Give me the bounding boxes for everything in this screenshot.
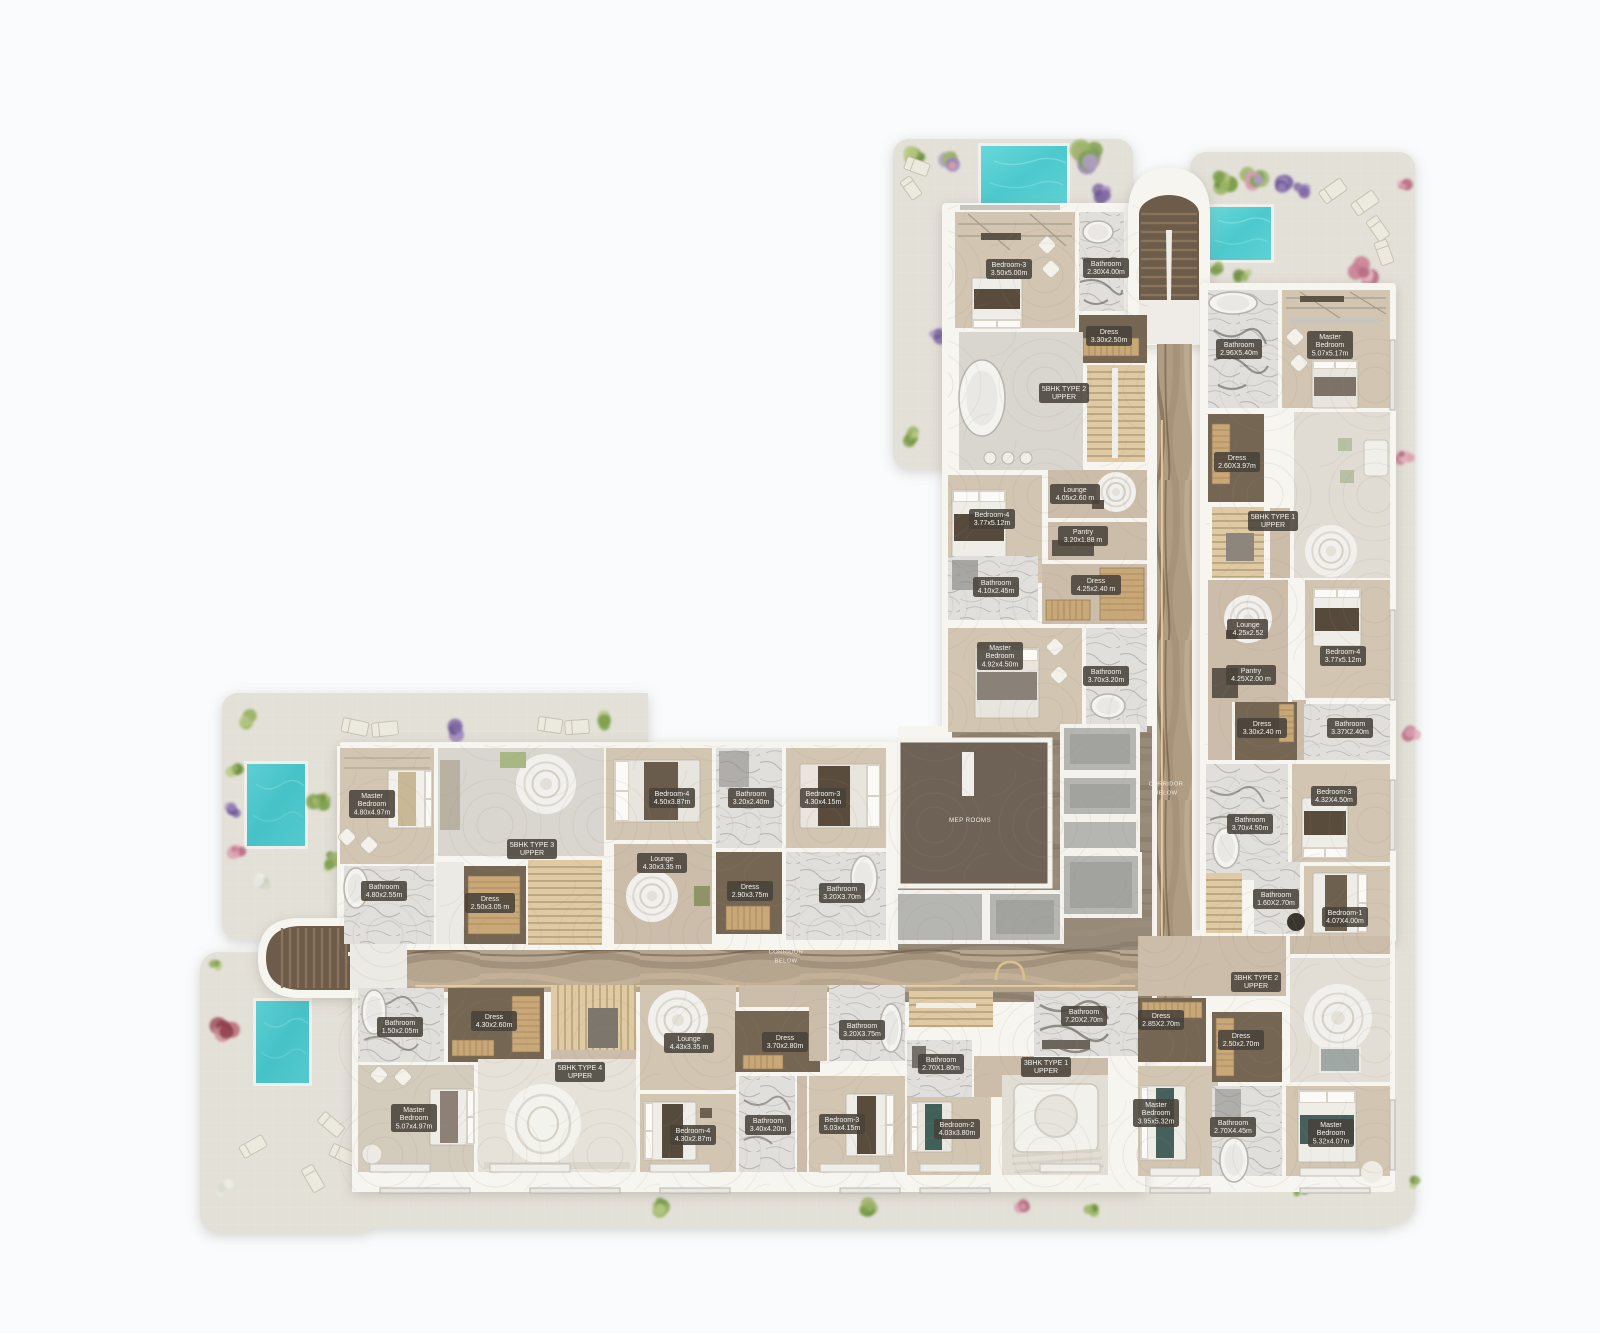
svg-text:Dress: Dress: [1152, 1013, 1171, 1020]
svg-text:Bedroom-2: Bedroom-2: [940, 1122, 975, 1129]
svg-text:3.95x5.32m: 3.95x5.32m: [1138, 1118, 1175, 1125]
svg-text:Master: Master: [361, 793, 383, 800]
svg-text:2.85X2.70m: 2.85X2.70m: [1142, 1021, 1180, 1028]
svg-text:2.70X4.45m: 2.70X4.45m: [1214, 1128, 1252, 1135]
svg-text:Bathroom: Bathroom: [385, 1020, 416, 1027]
svg-text:Bedroom: Bedroom: [400, 1115, 429, 1122]
svg-text:4.30x2.87m: 4.30x2.87m: [675, 1136, 712, 1143]
svg-text:5BHK TYPE 3: 5BHK TYPE 3: [510, 842, 554, 849]
svg-text:3.70x2.80m: 3.70x2.80m: [767, 1043, 804, 1050]
svg-text:UPPER: UPPER: [568, 1073, 592, 1080]
svg-text:UPPER: UPPER: [1034, 1068, 1058, 1075]
svg-text:Dress: Dress: [1087, 578, 1106, 585]
svg-text:3.40x4.20m: 3.40x4.20m: [750, 1126, 787, 1133]
svg-text:Pantry: Pantry: [1073, 529, 1094, 536]
svg-text:3.30x2.50m: 3.30x2.50m: [1091, 337, 1128, 344]
svg-text:Bathroom: Bathroom: [1091, 261, 1122, 268]
svg-text:Bedroom: Bedroom: [1142, 1110, 1171, 1117]
svg-text:UPPER: UPPER: [520, 850, 544, 857]
svg-text:Dress: Dress: [1253, 721, 1272, 728]
svg-text:BELOW: BELOW: [1155, 791, 1178, 797]
svg-text:Bedroom-4: Bedroom-4: [1326, 649, 1361, 656]
svg-text:4.30x2.60m: 4.30x2.60m: [476, 1022, 513, 1029]
svg-text:4.80x2.55m: 4.80x2.55m: [366, 892, 403, 899]
svg-text:Lounge: Lounge: [1236, 622, 1259, 629]
svg-text:Dress: Dress: [481, 896, 500, 903]
svg-text:Bedroom-4: Bedroom-4: [655, 791, 690, 798]
svg-text:Bathroom: Bathroom: [1335, 721, 1366, 728]
svg-text:Bedroom-3: Bedroom-3: [825, 1117, 860, 1124]
svg-text:7.20X2.70m: 7.20X2.70m: [1065, 1017, 1103, 1024]
svg-text:Bedroom: Bedroom: [986, 653, 1015, 660]
svg-text:Bedroom: Bedroom: [1316, 342, 1345, 349]
svg-text:Bathroom: Bathroom: [926, 1057, 957, 1064]
svg-text:5.03x4.15m: 5.03x4.15m: [824, 1125, 861, 1132]
svg-text:2.50x3.05 m: 2.50x3.05 m: [471, 904, 510, 911]
svg-text:3.20x1.88 m: 3.20x1.88 m: [1064, 537, 1103, 544]
svg-text:Bathroom: Bathroom: [1091, 669, 1122, 676]
svg-text:3.20x2.40m: 3.20x2.40m: [733, 799, 770, 806]
svg-text:Bedroom-3: Bedroom-3: [1317, 789, 1352, 796]
svg-text:5.32x4.07m: 5.32x4.07m: [1313, 1138, 1350, 1145]
svg-text:BELOW: BELOW: [775, 959, 798, 965]
svg-text:UPPER: UPPER: [1244, 983, 1268, 990]
svg-text:4.80x4.97m: 4.80x4.97m: [354, 809, 391, 816]
svg-text:3.37X2.40m: 3.37X2.40m: [1331, 729, 1369, 736]
svg-text:3.50x5.00m: 3.50x5.00m: [991, 270, 1028, 277]
svg-text:Bathroom: Bathroom: [1069, 1009, 1100, 1016]
svg-text:3BHK TYPE 2: 3BHK TYPE 2: [1234, 975, 1278, 982]
svg-text:Bathroom: Bathroom: [1224, 342, 1255, 349]
svg-text:Lounge: Lounge: [677, 1036, 700, 1043]
svg-text:Master: Master: [403, 1107, 425, 1114]
svg-text:UPPER: UPPER: [1261, 522, 1285, 529]
svg-text:Lounge: Lounge: [650, 856, 673, 863]
svg-text:Bedroom: Bedroom: [1317, 1130, 1346, 1137]
svg-text:Dress: Dress: [1100, 329, 1119, 336]
svg-text:3.70x4.50m: 3.70x4.50m: [1232, 825, 1269, 832]
svg-text:2.96X5.40m: 2.96X5.40m: [1220, 350, 1258, 357]
svg-text:4.92x4.50m: 4.92x4.50m: [982, 661, 1019, 668]
svg-text:4.50x3.87m: 4.50x3.87m: [654, 799, 691, 806]
svg-text:2.70X1.80m: 2.70X1.80m: [922, 1065, 960, 1072]
svg-text:Master: Master: [1320, 1122, 1342, 1129]
svg-text:Bathroom: Bathroom: [981, 580, 1012, 587]
svg-text:Bedroom-1: Bedroom-1: [1328, 910, 1363, 917]
svg-text:Dress: Dress: [776, 1035, 795, 1042]
svg-text:Bathroom: Bathroom: [847, 1023, 878, 1030]
svg-text:Master: Master: [1319, 334, 1341, 341]
svg-text:Dress: Dress: [1228, 455, 1247, 462]
svg-text:3.77x5.12m: 3.77x5.12m: [974, 520, 1011, 527]
svg-text:4.32X4.50m: 4.32X4.50m: [1315, 797, 1353, 804]
svg-text:Bathroom: Bathroom: [736, 791, 767, 798]
svg-text:Bedroom-3: Bedroom-3: [992, 262, 1027, 269]
svg-text:Master: Master: [1145, 1102, 1167, 1109]
svg-text:1.60X2.70m: 1.60X2.70m: [1257, 900, 1295, 907]
svg-text:Dress: Dress: [485, 1014, 504, 1021]
svg-text:5.07x5.17m: 5.07x5.17m: [1312, 350, 1349, 357]
svg-text:3.20X3.75m: 3.20X3.75m: [843, 1031, 881, 1038]
svg-text:2.50x2.70m: 2.50x2.70m: [1223, 1041, 1260, 1048]
svg-text:Bathroom: Bathroom: [753, 1118, 784, 1125]
svg-text:2.30X4.00m: 2.30X4.00m: [1087, 269, 1125, 276]
svg-text:Bathroom: Bathroom: [369, 884, 400, 891]
svg-text:UPPER: UPPER: [1052, 394, 1076, 401]
svg-text:Lounge: Lounge: [1063, 487, 1086, 494]
svg-text:2.60X3.97m: 2.60X3.97m: [1218, 463, 1256, 470]
svg-text:4.43x3.35 m: 4.43x3.35 m: [670, 1044, 709, 1051]
svg-text:4.25X2.00 m: 4.25X2.00 m: [1231, 676, 1271, 683]
svg-text:5BHK TYPE 1: 5BHK TYPE 1: [1251, 514, 1295, 521]
svg-text:3.20X3.70m: 3.20X3.70m: [823, 894, 861, 901]
svg-text:Dress: Dress: [741, 884, 760, 891]
svg-text:CORRIDOR: CORRIDOR: [1149, 782, 1184, 788]
svg-text:4.25x2.52: 4.25x2.52: [1233, 630, 1264, 637]
svg-text:Bedroom-3: Bedroom-3: [806, 791, 841, 798]
svg-text:3.77x5.12m: 3.77x5.12m: [1325, 657, 1362, 664]
svg-text:Bedroom-4: Bedroom-4: [975, 512, 1010, 519]
svg-text:CORRIDOR: CORRIDOR: [769, 950, 804, 956]
svg-text:Bedroom: Bedroom: [358, 801, 387, 808]
svg-text:4.10x2.45m: 4.10x2.45m: [978, 588, 1015, 595]
svg-text:4.30x4.15m: 4.30x4.15m: [805, 799, 842, 806]
svg-text:3.30x2.40 m: 3.30x2.40 m: [1243, 729, 1282, 736]
svg-text:Pantry: Pantry: [1241, 668, 1262, 675]
svg-text:4.07X4.00m: 4.07X4.00m: [1326, 918, 1364, 925]
svg-text:3BHK TYPE 1: 3BHK TYPE 1: [1024, 1060, 1068, 1067]
svg-text:4.03x3.80m: 4.03x3.80m: [939, 1130, 976, 1137]
svg-text:Master: Master: [989, 645, 1011, 652]
svg-text:1.50x2.05m: 1.50x2.05m: [382, 1028, 419, 1035]
svg-text:4.05x2.60 m: 4.05x2.60 m: [1056, 495, 1095, 502]
svg-text:2.90x3.75m: 2.90x3.75m: [732, 892, 769, 899]
svg-text:Bathroom: Bathroom: [827, 886, 858, 893]
svg-text:Bathroom: Bathroom: [1235, 817, 1266, 824]
svg-text:Bathroom: Bathroom: [1261, 892, 1292, 899]
svg-text:5BHK TYPE 2: 5BHK TYPE 2: [1042, 386, 1086, 393]
svg-text:5.07x4.97m: 5.07x4.97m: [396, 1123, 433, 1130]
svg-text:4.25x2.40 m: 4.25x2.40 m: [1077, 586, 1116, 593]
svg-text:Dress: Dress: [1232, 1033, 1251, 1040]
svg-text:5BHK TYPE 4: 5BHK TYPE 4: [558, 1065, 602, 1072]
svg-text:Bedroom-4: Bedroom-4: [676, 1128, 711, 1135]
svg-text:4.30x3.35 m: 4.30x3.35 m: [643, 864, 682, 871]
svg-text:Bathroom: Bathroom: [1218, 1120, 1249, 1127]
svg-text:3.70x3.20m: 3.70x3.20m: [1088, 677, 1125, 684]
